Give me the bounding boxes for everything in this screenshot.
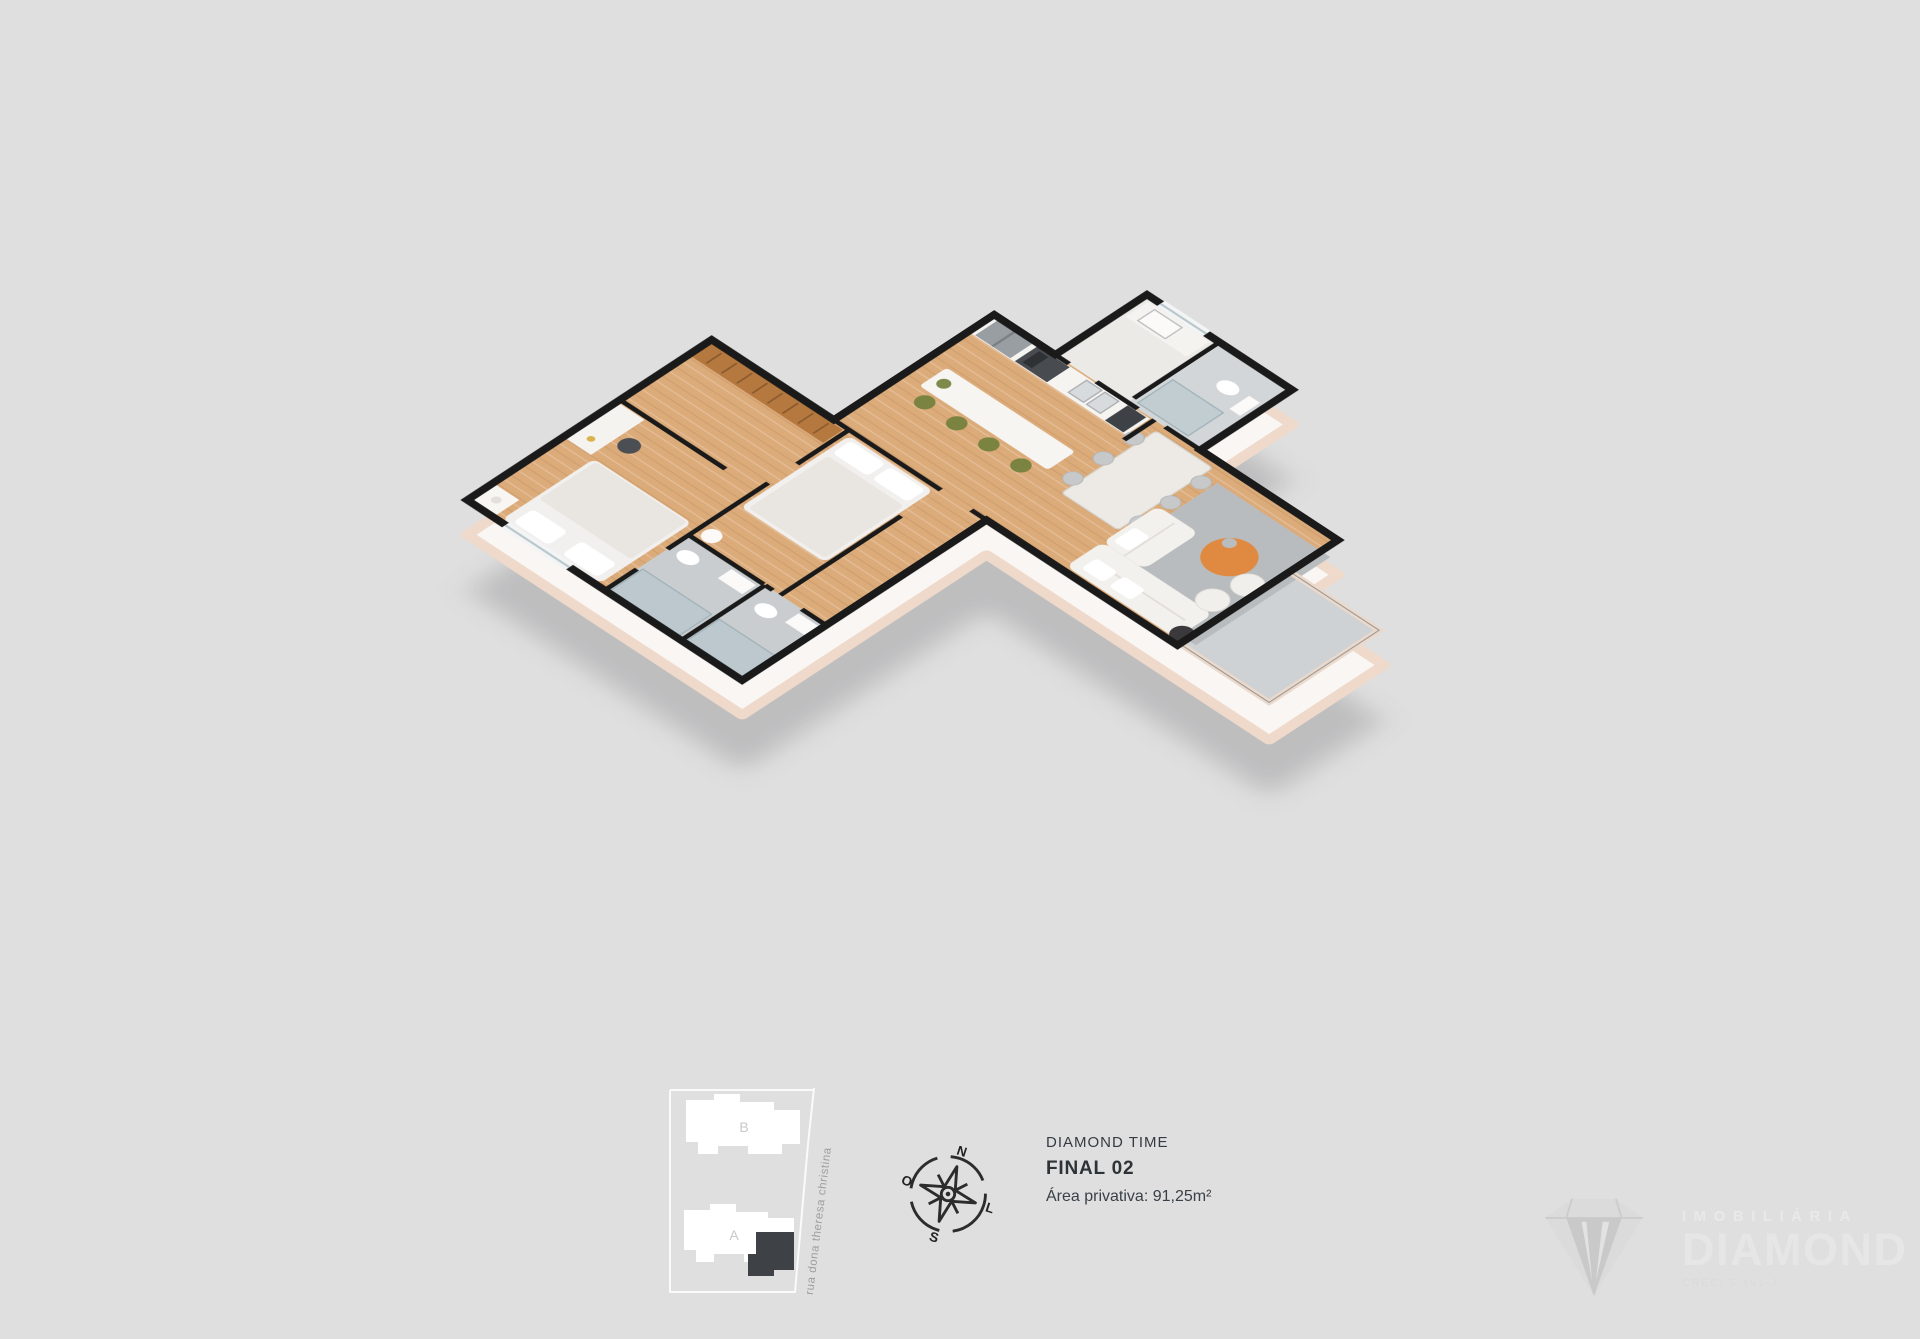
- watermark-imobiliaria: IMOBILIÁRIA: [1682, 1208, 1907, 1225]
- building-b-label: B: [739, 1119, 748, 1135]
- project-name: DIAMOND TIME: [1046, 1134, 1211, 1151]
- unit-info-block: DIAMOND TIME FINAL 02 Área privativa: 91…: [1046, 1134, 1211, 1206]
- watermark-creci: CRECI 5.491-J: [1682, 1277, 1907, 1289]
- floorplan-plan: [452, 159, 1567, 890]
- unit-label: FINAL 02: [1046, 1158, 1211, 1180]
- watermark-diamond: DIAMOND: [1682, 1227, 1907, 1272]
- page-canvas: B A rua dona theresa christina N L S O D…: [0, 0, 1920, 1339]
- building-a-label: A: [729, 1227, 739, 1243]
- private-area: Área privativa: 91,25m²: [1046, 1188, 1211, 1206]
- diamond-icon: [1532, 1192, 1656, 1304]
- compass-s: S: [927, 1229, 940, 1242]
- compass-rose-icon: N L S O: [900, 1146, 996, 1242]
- brand-watermark: IMOBILIÁRIA DIAMOND CRECI 5.491-J: [1532, 1192, 1907, 1304]
